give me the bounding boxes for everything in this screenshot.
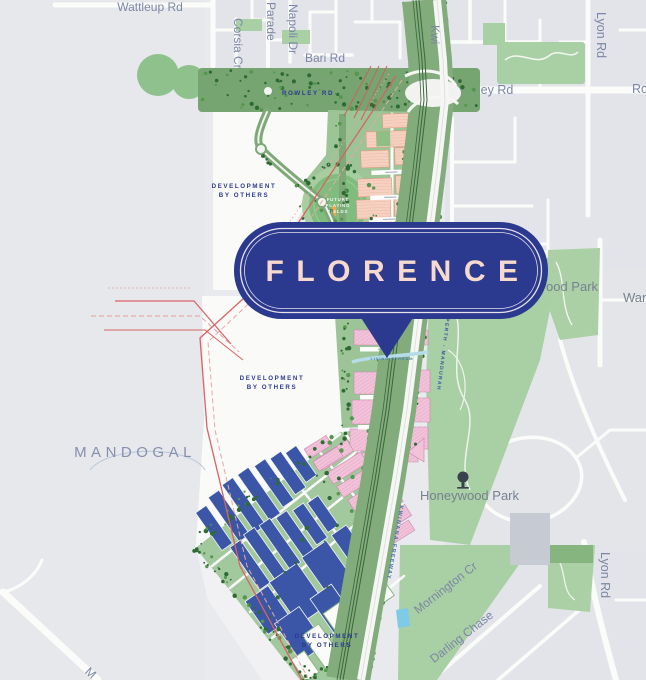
- tree-dot: [335, 93, 337, 95]
- tree-dot: [243, 491, 245, 493]
- tree-dot: [218, 568, 220, 570]
- estate-map: Wattleup Rd Parade Napoli Dr Corsia Cr B…: [0, 0, 646, 680]
- tree-dot: [347, 346, 352, 351]
- tree-dot: [280, 72, 284, 76]
- tree-dot: [295, 184, 298, 187]
- tree-dot: [375, 215, 377, 217]
- tree-dot: [239, 80, 241, 82]
- tree-dot: [261, 154, 265, 158]
- tree-dot: [324, 471, 329, 476]
- tree-dot: [339, 95, 343, 99]
- tree-dot: [246, 502, 250, 506]
- dev-others-2-line1: DEVELOPMENT: [240, 375, 305, 382]
- tree-dot: [260, 626, 262, 628]
- tree-dot: [342, 352, 344, 354]
- tree-dot: [264, 82, 267, 85]
- tree-dot: [243, 595, 247, 599]
- tree-dot: [244, 95, 247, 98]
- tree-dot: [226, 73, 229, 76]
- tree-dot: [306, 104, 309, 107]
- tree-dot: [224, 576, 227, 579]
- tree-dot: [337, 476, 341, 480]
- tree-dot: [320, 667, 323, 670]
- tree-dot: [249, 70, 253, 74]
- tree-dot: [355, 72, 360, 77]
- road-label-parade: Parade: [264, 2, 278, 41]
- tree-dot: [373, 214, 375, 216]
- tree-dot: [285, 646, 287, 648]
- tree-dot: [396, 104, 400, 108]
- tree-dot: [247, 90, 249, 92]
- tree-dot: [335, 125, 337, 127]
- tree-dot: [283, 656, 287, 660]
- tree-dot: [327, 496, 331, 500]
- tree-dot: [192, 549, 196, 553]
- tree-dot: [342, 337, 345, 340]
- tree-dot: [309, 455, 312, 458]
- tree-dot: [229, 69, 232, 72]
- tree-dot: [284, 571, 287, 574]
- tree-dot: [302, 462, 306, 466]
- tree-dot: [338, 138, 341, 141]
- tree-dot: [323, 481, 325, 483]
- dev-others-1-line2: BY OTHERS: [219, 192, 269, 199]
- tree-dot: [289, 663, 292, 666]
- tree-dot: [308, 86, 311, 89]
- tree-dot: [342, 191, 346, 195]
- tree-dot: [203, 562, 205, 564]
- tree-dot: [288, 649, 293, 654]
- tree-dot: [370, 217, 373, 220]
- tree-dot: [230, 579, 232, 581]
- tree-dot: [253, 607, 255, 609]
- tree-dot: [306, 181, 311, 186]
- callout-title: FLORENCE: [266, 255, 531, 288]
- tree-dot: [359, 77, 362, 80]
- tree-dot: [214, 570, 216, 572]
- road-label-lyon-south: Lyon Rd: [598, 552, 612, 598]
- place-label-honeywood-park: Honeywood Park: [420, 488, 519, 503]
- tree-dot: [315, 675, 317, 677]
- tree-dot: [270, 478, 272, 480]
- tree-dot: [313, 447, 317, 451]
- road-label-lyon-north: Lyon Rd: [594, 12, 608, 58]
- tree-dot: [276, 482, 280, 486]
- road-label-bari: Bari Rd: [305, 51, 345, 65]
- tree-dot: [329, 435, 333, 439]
- tree-dot: [265, 158, 268, 161]
- tree-dot: [260, 108, 263, 111]
- tree-dot: [240, 107, 242, 109]
- place-label-wandi-fragment: Wan: [623, 290, 646, 305]
- tree-dot: [335, 523, 339, 527]
- tree-dot: [294, 561, 297, 564]
- tree-dot: [404, 103, 407, 106]
- tree-dot: [322, 166, 324, 168]
- tree-dot: [342, 182, 345, 185]
- tree-dot: [346, 373, 350, 377]
- tree-dot: [253, 610, 255, 612]
- tree-dot: [273, 71, 275, 73]
- tree-dot: [250, 102, 254, 106]
- tree-dot: [317, 82, 320, 85]
- tree-dot: [373, 99, 377, 103]
- tree-dot: [267, 95, 269, 97]
- tree-dot: [341, 377, 344, 380]
- tree-dot: [248, 495, 250, 497]
- tree-dot: [244, 75, 247, 78]
- tree-dot: [237, 508, 242, 513]
- tree-dot: [226, 581, 228, 583]
- tree-dot: [340, 218, 343, 221]
- road-label-rowley-band: ROWLEY RD: [282, 90, 334, 97]
- tree-dot: [355, 105, 358, 108]
- tree-dot: [347, 323, 349, 325]
- tree-dot: [210, 555, 213, 558]
- tree-dot: [460, 85, 464, 89]
- tree-dot: [475, 104, 478, 107]
- tree-dot: [252, 497, 256, 501]
- tree-dot: [324, 540, 326, 542]
- tree-dot: [328, 440, 333, 445]
- tree-dot: [353, 170, 356, 173]
- tree-dot: [303, 665, 306, 668]
- tree-dot: [210, 532, 214, 536]
- tree-dot: [314, 200, 316, 202]
- tree-dot: [323, 167, 325, 169]
- locality-label-mandogalup: MANDOGAL: [74, 444, 196, 461]
- tree-dot: [396, 97, 398, 99]
- tree-dot: [322, 440, 324, 442]
- dev-others-1-line1: DEVELOPMENT: [212, 183, 277, 190]
- road-label-corsia: Corsia Cr: [231, 18, 245, 69]
- tree-dot: [340, 443, 343, 446]
- tree-dot: [343, 328, 345, 330]
- tree-dot: [334, 144, 338, 148]
- tree-dot: [224, 572, 228, 576]
- tree-dot: [296, 461, 299, 464]
- dev-others-3-line2: BY OTHERS: [302, 642, 352, 649]
- tree-dot: [357, 101, 360, 104]
- tree-dot: [309, 677, 311, 679]
- tree-dot: [280, 80, 283, 83]
- future-fields-line3: FIELDS: [328, 209, 348, 214]
- tree-dot: [249, 604, 251, 606]
- tree-dot: [391, 106, 393, 108]
- future-fields-line1: FUTURE: [327, 197, 350, 202]
- tree-dot: [276, 595, 280, 599]
- tree-dot: [346, 70, 348, 72]
- road-label-wattleup: Wattleup Rd: [117, 0, 183, 14]
- tree-dot: [215, 84, 217, 86]
- tree-dot: [255, 106, 259, 110]
- tree-dot: [346, 402, 351, 407]
- tree-dot: [227, 94, 229, 96]
- tree-dot: [334, 101, 337, 104]
- tree-dot: [350, 475, 354, 479]
- tree-dot: [309, 186, 312, 189]
- tree-dot: [347, 380, 349, 382]
- tree-dot: [382, 100, 385, 103]
- tree-dot: [399, 90, 401, 92]
- tree-dot: [320, 209, 324, 213]
- stream-label-living-stream: LIVING STREAM: [370, 356, 413, 361]
- tree-dot: [372, 186, 375, 189]
- tree-dot: [237, 505, 239, 507]
- tree-dot: [342, 102, 346, 106]
- tree-dot: [346, 388, 348, 390]
- tree-dot: [350, 106, 355, 111]
- tree-dot: [257, 610, 261, 614]
- tree-dot: [355, 108, 357, 110]
- tree-dot: [263, 630, 267, 634]
- tree-dot: [292, 79, 296, 83]
- road-label-kwinana-abbr: Kwi: [428, 25, 442, 44]
- tree-dot: [273, 631, 275, 633]
- tree-dot: [340, 350, 342, 352]
- tree-dot: [291, 103, 293, 105]
- tree-dot: [232, 594, 236, 598]
- tree-dot: [241, 103, 244, 106]
- tree-dot: [224, 523, 226, 525]
- tree-dot: [274, 97, 276, 99]
- tree-dot: [406, 81, 408, 83]
- tree-dot: [309, 81, 313, 85]
- tree-dot: [221, 580, 225, 584]
- tree-dot: [210, 524, 212, 526]
- tree-dot: [316, 475, 318, 477]
- tree-dot: [390, 94, 392, 96]
- tree-dot: [342, 389, 346, 393]
- tree-dot: [205, 527, 208, 530]
- tree-dot: [313, 82, 316, 85]
- tree-dot: [255, 496, 258, 499]
- tree-dot: [336, 93, 339, 96]
- tree-dot: [201, 98, 205, 102]
- place-label-park-fragment: ood Park: [546, 279, 599, 294]
- tree-dot: [286, 74, 289, 77]
- tree-dot: [339, 79, 342, 82]
- tree-dot: [344, 371, 346, 373]
- tree-dot: [472, 88, 476, 92]
- tree-dot: [204, 72, 208, 76]
- dev-others-3-line1: DEVELOPMENT: [295, 633, 360, 640]
- tree-dot: [464, 104, 467, 107]
- tree-dot: [307, 73, 311, 77]
- tree-dot: [276, 478, 279, 481]
- dev-others-2-line2: BY OTHERS: [247, 384, 297, 391]
- tree-dot: [338, 122, 342, 126]
- tree-dot: [324, 669, 327, 672]
- tree-dot: [199, 531, 201, 533]
- tree-dot: [215, 79, 219, 83]
- tree-dot: [301, 538, 305, 542]
- estate-map-stage: Wattleup Rd Parade Napoli Dr Corsia Cr B…: [0, 0, 646, 680]
- tree-dot: [305, 526, 309, 530]
- tree-dot: [269, 616, 271, 618]
- lot: [361, 150, 390, 168]
- tree-dot: [341, 370, 343, 372]
- tree-dot: [343, 378, 345, 380]
- tree-dot: [312, 176, 315, 179]
- tree-dot: [326, 586, 329, 589]
- tree-dot: [214, 530, 217, 533]
- tree-dot: [342, 86, 345, 89]
- tree-dot: [341, 425, 343, 427]
- tree-dot: [346, 76, 348, 78]
- tree-dot: [346, 407, 349, 410]
- tree-dot: [308, 669, 310, 671]
- tree-dot: [207, 564, 209, 566]
- tree-dot: [269, 639, 271, 641]
- tree-dot: [343, 432, 347, 436]
- tree-dot: [406, 71, 408, 73]
- tree-dot: [350, 416, 354, 420]
- tree-dot: [342, 436, 346, 440]
- tree-dot: [266, 161, 269, 164]
- tree-dot: [329, 71, 332, 74]
- tree-dot: [414, 443, 417, 446]
- lot: [376, 131, 391, 146]
- future-fields-line2: PLAYING: [326, 203, 351, 208]
- tree-dot: [334, 220, 336, 222]
- tree-dot: [279, 86, 282, 89]
- tree-dot: [367, 183, 371, 187]
- tree-dot: [276, 79, 280, 83]
- tree-dot: [278, 107, 281, 110]
- tree-dot: [291, 470, 293, 472]
- road-label-napoli: Napoli Dr: [286, 4, 300, 54]
- tree-dot: [203, 552, 205, 554]
- road-label-rowley-east: ey Rd: [481, 83, 514, 97]
- tree-dot: [337, 492, 340, 495]
- tree-dot: [290, 553, 292, 555]
- tree-dot: [261, 620, 265, 624]
- tree-dot: [339, 448, 343, 452]
- tree-dot: [238, 498, 240, 500]
- tree-dot: [350, 509, 354, 513]
- tree-dot: [458, 79, 462, 83]
- tree-dot: [365, 83, 368, 86]
- tree-dot: [246, 496, 249, 499]
- tree-dot: [200, 543, 202, 545]
- tree-dot: [209, 70, 212, 73]
- road-label-rowley-far: Ro: [632, 82, 646, 96]
